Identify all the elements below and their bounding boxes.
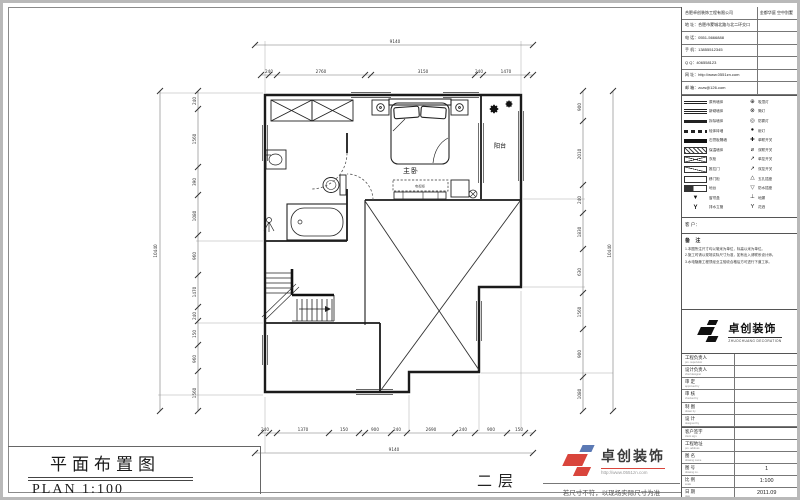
legend-icon: ● [749,128,756,134]
legend-icon: ⊥ [749,195,756,201]
svg-text:9140: 9140 [390,39,401,44]
legend-label: 五孔插座 [758,177,772,182]
svg-text:150: 150 [515,427,523,432]
footer-value: 1:100 [735,476,798,487]
footer-label: 日 期date [682,488,735,499]
signature-value [735,378,798,389]
sink [266,150,286,169]
legend: 原有墙体 新砌墙体 拆除墙体 轻体砖墙 石膏板隔墙 保温墙体 [682,96,798,218]
info-row: 地 址：合肥市蒙城北路与北二环交口 [682,20,798,33]
legend-label: 双控开关 [758,167,772,172]
legend-icon: Y [749,205,756,211]
signature-label: 审 定approved by [682,378,735,389]
legend-label: 防雾灯 [758,119,769,124]
legend-line-symbol [684,120,707,123]
signature-value [735,390,798,401]
legend-item: ● 射灯 [749,126,798,136]
floor-label: 二层 [477,470,519,491]
svg-text:1560: 1560 [192,387,197,398]
svg-text:240: 240 [393,427,401,432]
svg-text:900: 900 [577,103,582,111]
info-row-label: 手 机：13855512345 [682,47,757,53]
legend-icon: ↗ [749,157,756,163]
footer-label: 客户签字client sign. [682,428,735,439]
legend-item: Y 花洒 [749,203,798,213]
svg-text:900: 900 [577,350,582,358]
legend-item: 移门柜 [684,174,747,184]
note-line: 1.本图所注尺寸均以毫米为单位，标高以米为单位。 [685,246,795,253]
legend-label: 衣柜 [709,157,716,162]
footer-row: 工程地址pro. address [682,440,798,452]
legend-item: 排水立管 [684,203,747,213]
door-swings [311,153,373,200]
legend-item: 新砌墙体 [684,107,747,117]
room-label-balcony: 阳台 [494,142,506,150]
legend-item: ⌀ 双联开关 [749,145,798,155]
project-name: 金都华庭 空中别墅 [757,7,798,19]
legend-line-symbol [684,176,707,183]
legend-item: 拆除墙体 [684,117,747,127]
svg-text:3150: 3150 [418,69,429,74]
info-row-value [757,57,798,69]
client-row: 客 户： [682,218,798,234]
svg-text:240: 240 [192,312,197,320]
legend-line-symbol [684,139,707,143]
info-row-label: Q Q：406558123 [682,60,757,66]
exterior-walls [265,95,521,392]
desk-and-chair [451,180,477,198]
company-name: 合肥卓创装饰工程有限公司 [682,10,757,16]
info-row-label: 电 话：0551-5666888 [682,35,757,41]
info-row-value [757,20,798,32]
brand-logo-icon [561,443,601,479]
footer-value [735,428,798,439]
svg-text:2690: 2690 [426,427,437,432]
brand-text: 卓创装饰 http://www.0551zn.com [601,443,665,475]
info-row: 邮 箱：zczs@126.com [682,82,798,95]
company-logo-text: 卓创装饰 ZHUOCHUANG DECORATION [728,320,781,343]
legend-item: ⊥ 地漏 [749,193,798,203]
signature-label: 设 计designed by [682,415,735,426]
drawing-sheet: 9140 240 2760 3150 240 1470 240 1370 150… [0,0,800,500]
legend-icon: ↗ [749,167,756,173]
svg-text:900: 900 [371,427,379,432]
signature-value [735,366,798,377]
tv-cabinet [393,180,448,199]
footer-row: 日 期date 2011.09 [682,488,798,500]
info-row-value [757,45,798,57]
toilet [323,175,346,195]
company-row: 合肥卓创装饰工程有限公司 金都华庭 空中别墅 [682,7,798,20]
legend-label: 拆除墙体 [709,119,723,124]
legend-label: 防水插座 [758,186,772,191]
legend-line-symbol [684,195,707,201]
balcony-plants [490,100,513,113]
svg-text:10440: 10440 [607,244,612,258]
legend-label: 轻体砖墙 [709,129,723,134]
svg-text:240: 240 [265,69,273,74]
legend-label: 保温墙体 [709,148,723,153]
svg-text:240: 240 [459,427,467,432]
plan-title-scale: PLAN 1:100 [32,482,260,498]
svg-text:240: 240 [577,196,582,204]
info-row-label: 地 址：合肥市蒙城北路与北二环交口 [682,22,757,28]
note-line: 3.水电隐蔽工程须经业主验收合格后方可进行下道工序。 [685,259,795,266]
brand-url: http://www.0551zn.com [601,468,665,475]
signature-row: 审 定approved by [682,378,798,390]
title-block: 合肥卓创装饰工程有限公司 金都华庭 空中别墅 地 址：合肥市蒙城北路与北二环交口… [681,7,798,498]
bathtub [287,204,347,240]
legend-label: 排水立管 [709,205,723,210]
legend-item: △ 五孔插座 [749,174,798,184]
info-row-value [757,70,798,82]
legend-item: 轻体砖墙 [684,126,747,136]
plan-title-cn: 平面布置图 [50,450,260,475]
svg-text:240: 240 [475,69,483,74]
footer-row: 图 名drawing name [682,452,798,464]
staircase [262,269,334,321]
logo-en: ZHUOCHUANG DECORATION [728,337,781,343]
company-info-table: 合肥卓创装饰工程有限公司 金都华庭 空中别墅 地 址：合肥市蒙城北路与北二环交口… [682,7,798,96]
void-cross [365,201,520,390]
svg-text:1470: 1470 [192,286,197,297]
signature-label: 审 核checked by [682,390,735,401]
info-row-label: 网 址：http://www.0551zn.com [682,72,757,78]
signature-row: 制 图drawn by [682,403,798,415]
tv-cabinet-label: 电视柜 [415,184,426,189]
svg-text:240: 240 [192,97,197,105]
plan-title-block: 平面布置图 PLAN 1:100 [8,446,261,494]
legend-item: 窗帘盒 [684,193,747,203]
legend-label: 双联开关 [758,148,772,153]
svg-text:1080: 1080 [577,388,582,399]
windows [263,93,524,395]
plan-title-underline [28,477,193,481]
legend-label: 吸顶灯 [758,100,769,105]
svg-text:2760: 2760 [316,69,327,74]
footer-row: 比 例scale 1:100 [682,476,798,488]
svg-text:390: 390 [192,178,197,186]
footer-value: 2011.09 [735,488,798,499]
bed [389,99,451,164]
info-row-value [757,82,798,94]
company-logo-icon [698,319,724,343]
legend-line-symbol [684,147,707,154]
dimension-disclaimer: 若尺寸不符，以现场实际尺寸为准 [543,483,680,497]
info-row-value [757,32,798,44]
legend-line-symbol [684,101,707,104]
signature-label: 工程负责人pro. supervisor [682,354,735,365]
svg-text:9140: 9140 [389,447,400,452]
legend-item: 地台 [684,184,747,194]
legend-label: 石膏板隔墙 [709,138,727,143]
notes-block: 备 注 1.本图所注尺寸均以毫米为单位，标高以米为单位。2.施工时请以现场实际尺… [682,234,798,310]
legend-label: 单控开关 [758,157,772,162]
legend-line-symbol [684,109,707,114]
footer-label: 图 号drawing no. [682,464,735,475]
info-row: Q Q：406558123 [682,57,798,70]
svg-text:150: 150 [340,427,348,432]
svg-text:1470: 1470 [501,69,512,74]
signature-label: 制 图drawn by [682,403,735,414]
legend-label: 窗帘盒 [709,196,720,201]
svg-text:240: 240 [261,427,269,432]
client-label: 客 户： [685,222,700,228]
legend-line-symbol [684,156,707,163]
legend-label: 原有墙体 [709,100,723,105]
signature-value [735,415,798,426]
brand-name: 卓创装饰 [601,446,665,466]
note-line: 2.施工时请以现场实际尺寸为准，如有出入请联系设计师。 [685,252,795,259]
legend-icon: ⊕ [749,100,756,106]
legend-icon: ✚ [749,138,756,144]
svg-text:960: 960 [192,355,197,363]
interior-walls [265,95,521,392]
legend-icon: ▽ [749,186,756,192]
legend-line-symbol [684,130,707,133]
legend-item: 衣柜 [684,155,747,165]
svg-text:2010: 2010 [577,148,582,159]
legend-label: 花洒 [758,205,765,210]
titleblock-logo: 卓创装饰 ZHUOCHUANG DECORATION [682,310,798,354]
wardrobe [271,100,353,121]
legend-icon: △ [749,176,756,182]
info-row: 网 址：http://www.0551zn.com [682,70,798,83]
legend-label: 推拉门 [709,167,720,172]
footer-row: 图 号drawing no. 1 [682,464,798,476]
svg-text:1830: 1830 [577,226,582,237]
legend-label: 地漏 [758,196,765,201]
legend-icon: ◎ [749,119,756,125]
signature-value [735,403,798,414]
legend-item: ⊗ 筒灯 [749,107,798,117]
info-row-label: 邮 箱：zczs@126.com [682,85,757,91]
info-row: 电 话：0551-5666888 [682,32,798,45]
legend-item: ⊕ 吸顶灯 [749,98,798,108]
svg-text:1370: 1370 [298,427,309,432]
legend-item: 推拉门 [684,165,747,175]
legend-line-symbol [684,205,707,211]
nightstands [372,100,468,115]
signature-label: 设计负责人chief designer [682,366,735,377]
logo-cn: 卓创装饰 [728,320,781,336]
svg-text:1560: 1560 [577,306,582,317]
footer-value [735,440,798,451]
footer-row: 客户签字client sign. [682,428,798,440]
legend-item: 保温墙体 [684,145,747,155]
signature-row: 设 计designed by [682,415,798,427]
legend-label: 地台 [709,186,716,191]
legend-item: ↗ 双控开关 [749,165,798,175]
legend-label: 筒灯 [758,109,765,114]
dimension-ticks [157,42,616,456]
legend-label: 单联开关 [758,138,772,143]
svg-text:900: 900 [487,427,495,432]
info-row: 手 机：13855512345 [682,45,798,58]
signature-row: 工程负责人pro. supervisor [682,354,798,366]
legend-icon: ⊗ [749,109,756,115]
svg-text:960: 960 [192,252,197,260]
dimension-labels: 9140 240 2760 3150 240 1470 240 1370 150… [153,39,612,452]
svg-text:10440: 10440 [153,244,158,258]
legend-label: 移门柜 [709,177,720,182]
svg-text:150: 150 [192,330,197,338]
brand-watermark: 卓创装饰 http://www.0551zn.com [561,443,665,479]
legend-item: ✚ 单联开关 [749,136,798,146]
room-label-master: 主卧 [403,166,419,175]
svg-text:1560: 1560 [192,133,197,144]
legend-item: ↗ 单控开关 [749,155,798,165]
legend-line-symbol [684,166,707,173]
signature-row: 设计负责人chief designer [682,366,798,378]
svg-text:630: 630 [577,268,582,276]
notes-title: 备 注 [685,237,795,244]
legend-item: 石膏板隔墙 [684,136,747,146]
signature-value [735,354,798,365]
footer-value: 1 [735,464,798,475]
svg-text:1080: 1080 [192,210,197,221]
footer-label: 工程地址pro. address [682,440,735,451]
legend-label: 新砌墙体 [709,109,723,114]
legend-line-symbol [684,185,707,192]
footer-label: 比 例scale [682,476,735,487]
legend-icon: ⌀ [749,148,756,154]
footer-value [735,452,798,463]
legend-item: 原有墙体 [684,98,747,108]
legend-item: ◎ 防雾灯 [749,117,798,127]
dimension-lines: 9140 240 2760 3150 240 1470 240 1370 150… [153,39,616,456]
signature-row: 审 核checked by [682,390,798,402]
legend-label: 射灯 [758,129,765,134]
footer-label: 图 名drawing name [682,452,735,463]
legend-item: ▽ 防水插座 [749,184,798,194]
